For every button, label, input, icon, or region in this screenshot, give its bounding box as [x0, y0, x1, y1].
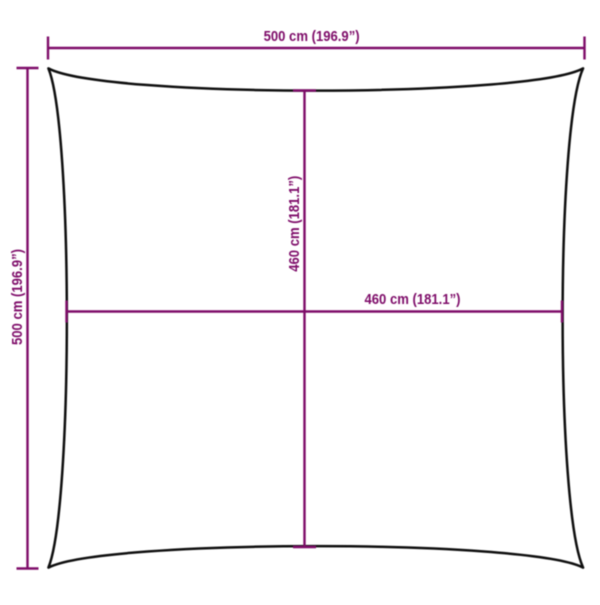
svg-text:460 cm (181.1”): 460 cm (181.1”): [287, 176, 303, 272]
svg-text:460 cm (181.1”): 460 cm (181.1”): [365, 292, 461, 308]
svg-text:500 cm (196.9”): 500 cm (196.9”): [10, 249, 26, 345]
svg-text:500 cm (196.9”): 500 cm (196.9”): [264, 29, 360, 45]
